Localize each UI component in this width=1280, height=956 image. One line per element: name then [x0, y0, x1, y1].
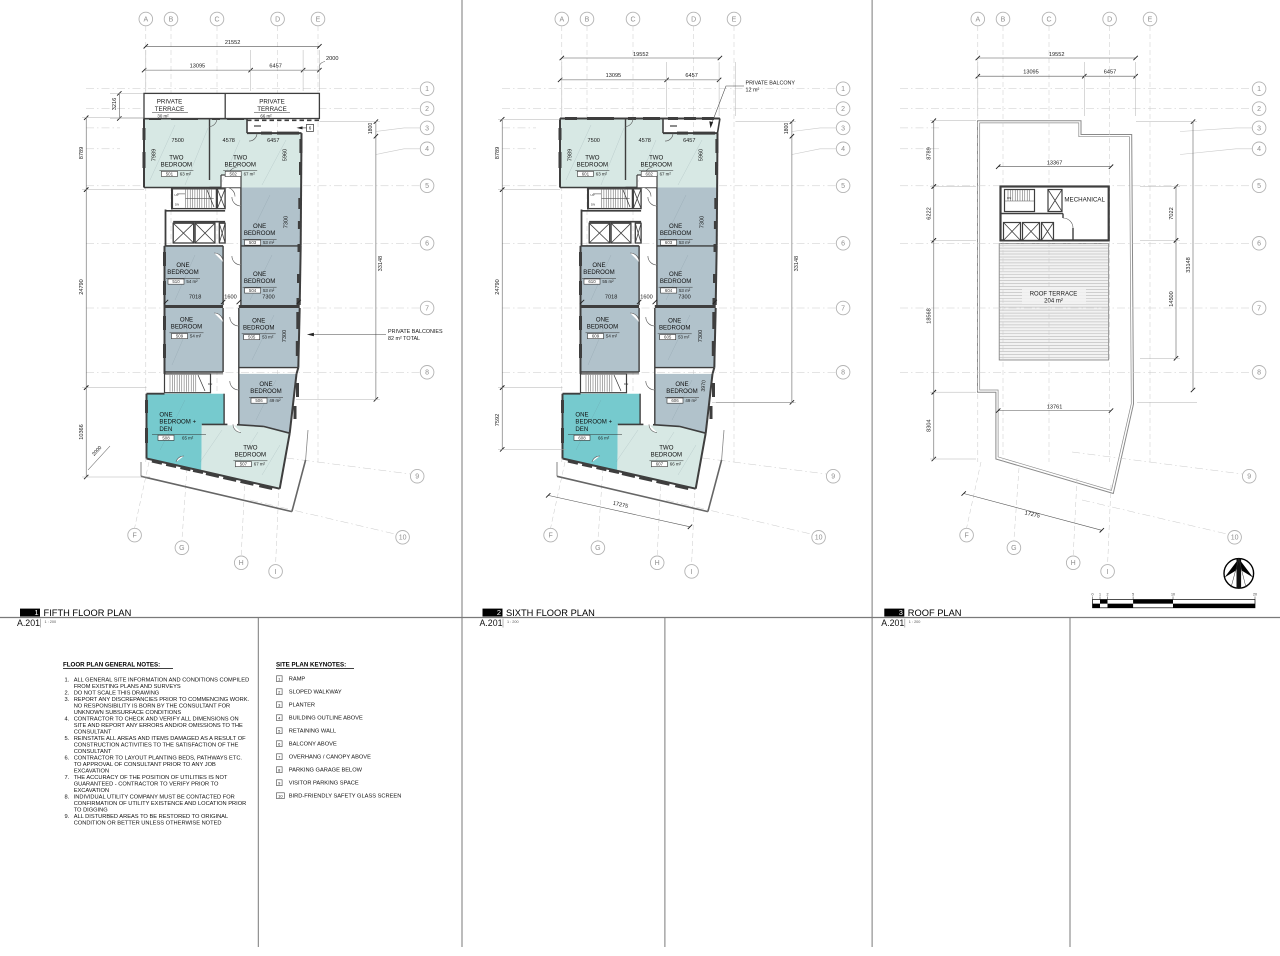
- svg-text:7300: 7300: [698, 330, 704, 342]
- svg-text:PRIVATE BALCONIES: PRIVATE BALCONIES: [388, 329, 443, 335]
- svg-text:33148: 33148: [1186, 257, 1192, 273]
- svg-text:ONE: ONE: [253, 223, 266, 230]
- svg-text:A: A: [559, 16, 564, 23]
- svg-text:5960: 5960: [699, 149, 705, 161]
- svg-text:ONE: ONE: [675, 381, 688, 388]
- svg-text:13761: 13761: [1047, 404, 1063, 410]
- svg-text:607: 607: [656, 462, 664, 467]
- svg-text:1600: 1600: [224, 295, 236, 301]
- svg-text:GUARANTEED - CONTRACTOR TO VER: GUARANTEED - CONTRACTOR TO VERIFY PRIOR …: [74, 782, 219, 788]
- svg-text:BEDROOM: BEDROOM: [651, 452, 683, 459]
- svg-text:E: E: [732, 16, 737, 23]
- svg-text:6.: 6.: [65, 756, 70, 762]
- svg-text:NO RESPONSIBILITY IS BORN BY T: NO RESPONSIBILITY IS BORN BY THE CONSULT…: [74, 704, 230, 710]
- svg-text:1 : 200: 1 : 200: [909, 620, 921, 624]
- svg-text:BALCONY ABOVE: BALCONY ABOVE: [289, 742, 337, 748]
- svg-text:508: 508: [162, 435, 170, 440]
- svg-text:7300: 7300: [282, 330, 288, 342]
- svg-text:VISITOR PARKING SPACE: VISITOR PARKING SPACE: [289, 781, 359, 787]
- svg-text:REINSTATE ALL AREAS AND ITEMS: REINSTATE ALL AREAS AND ITEMS DAMAGED AS…: [74, 736, 246, 742]
- svg-text:601: 601: [582, 172, 590, 177]
- svg-text:2: 2: [425, 106, 429, 113]
- svg-text:A: A: [143, 16, 148, 23]
- svg-text:DEN: DEN: [575, 426, 588, 433]
- svg-text:DN: DN: [175, 203, 179, 207]
- svg-text:ROOF PLAN: ROOF PLAN: [908, 608, 962, 618]
- svg-text:TWO: TWO: [585, 154, 599, 161]
- svg-text:5: 5: [1132, 593, 1134, 597]
- svg-text:608: 608: [578, 435, 586, 440]
- svg-text:7500: 7500: [171, 138, 183, 144]
- svg-text:4: 4: [425, 146, 429, 153]
- svg-text:B: B: [1001, 16, 1006, 23]
- svg-text:6457: 6457: [267, 138, 279, 144]
- svg-text:3970: 3970: [701, 380, 708, 392]
- svg-text:TO DIGGING: TO DIGGING: [74, 808, 108, 814]
- svg-text:7: 7: [425, 305, 429, 312]
- svg-text:1800: 1800: [368, 123, 374, 135]
- svg-text:ONE: ONE: [596, 317, 609, 324]
- svg-text:CONDITION OR BETTER UNLESS OTH: CONDITION OR BETTER UNLESS OTHERWISE NOT…: [74, 821, 222, 827]
- svg-text:F: F: [964, 533, 968, 540]
- svg-text:CONSULTANT: CONSULTANT: [74, 730, 112, 736]
- svg-text:CONSULTANT: CONSULTANT: [74, 749, 112, 755]
- svg-text:6: 6: [841, 241, 845, 248]
- svg-text:604: 604: [665, 288, 673, 293]
- svg-text:67 m²: 67 m²: [244, 172, 256, 177]
- svg-text:A.201: A.201: [881, 618, 904, 628]
- svg-text:BEDROOM +: BEDROOM +: [575, 419, 612, 426]
- svg-text:1600: 1600: [640, 295, 652, 301]
- svg-text:18568: 18568: [927, 308, 933, 324]
- svg-text:PRIVATE: PRIVATE: [259, 99, 285, 106]
- svg-text:602: 602: [646, 172, 654, 177]
- svg-text:67 m²: 67 m²: [254, 462, 266, 467]
- svg-text:UP: UP: [174, 193, 178, 197]
- svg-text:66 m²: 66 m²: [598, 435, 610, 440]
- svg-text:3: 3: [1257, 125, 1261, 132]
- svg-text:24790: 24790: [495, 279, 501, 295]
- svg-text:504: 504: [249, 288, 257, 293]
- svg-text:13095: 13095: [606, 73, 622, 79]
- svg-text:H: H: [239, 560, 244, 567]
- svg-text:TWO: TWO: [659, 445, 673, 452]
- svg-text:10: 10: [815, 535, 823, 542]
- svg-text:6: 6: [1257, 241, 1261, 248]
- svg-text:G: G: [1011, 545, 1016, 552]
- svg-text:1: 1: [1099, 593, 1101, 597]
- svg-text:BEDROOM: BEDROOM: [587, 324, 619, 331]
- svg-text:7500: 7500: [587, 138, 599, 144]
- svg-text:OVERHANG / CANOPY ABOVE: OVERHANG / CANOPY ABOVE: [289, 755, 371, 761]
- svg-text:10366: 10366: [79, 424, 85, 440]
- svg-text:7022: 7022: [1169, 207, 1175, 219]
- svg-text:7300: 7300: [284, 216, 290, 228]
- svg-text:3: 3: [425, 125, 429, 132]
- svg-text:3.: 3.: [65, 697, 70, 703]
- svg-text:TWO: TWO: [649, 154, 663, 161]
- svg-text:TERRACE: TERRACE: [155, 106, 185, 113]
- svg-text:PRIVATE BALCONY: PRIVATE BALCONY: [746, 81, 796, 87]
- svg-text:TWO: TWO: [169, 154, 183, 161]
- svg-text:19552: 19552: [633, 52, 649, 58]
- svg-text:5960: 5960: [283, 149, 289, 161]
- svg-text:FIFTH FLOOR PLAN: FIFTH FLOOR PLAN: [44, 608, 132, 618]
- svg-text:E: E: [316, 16, 321, 23]
- svg-text:BUILDING OUTLINE ABOVE: BUILDING OUTLINE ABOVE: [289, 716, 363, 722]
- svg-text:A: A: [975, 16, 980, 23]
- svg-text:BIRD-FRIENDLY SAFETY GLASS SCR: BIRD-FRIENDLY SAFETY GLASS SCREEN: [289, 794, 402, 800]
- svg-text:BEDROOM: BEDROOM: [244, 230, 276, 237]
- svg-text:ONE: ONE: [253, 271, 266, 278]
- svg-text:1 : 200: 1 : 200: [507, 620, 519, 624]
- svg-text:FROM EXISTING PLANS AND SURVEY: FROM EXISTING PLANS AND SURVEYS: [74, 684, 181, 690]
- svg-text:4578: 4578: [222, 138, 234, 144]
- svg-text:53 m²: 53 m²: [679, 288, 691, 293]
- svg-text:5: 5: [1257, 183, 1261, 190]
- svg-text:BEDROOM: BEDROOM: [660, 230, 692, 237]
- svg-text:INDIVIDUAL UTILITY COMPANY MUS: INDIVIDUAL UTILITY COMPANY MUST BE CONTA…: [74, 795, 235, 801]
- svg-text:6457: 6457: [685, 73, 697, 79]
- svg-text:503: 503: [249, 240, 257, 245]
- svg-text:9.: 9.: [65, 814, 70, 820]
- svg-text:BEDROOM: BEDROOM: [244, 278, 276, 285]
- svg-text:3: 3: [841, 125, 845, 132]
- svg-text:603: 603: [665, 240, 673, 245]
- svg-text:82 m² TOTAL: 82 m² TOTAL: [388, 336, 420, 342]
- svg-text:55 m²: 55 m²: [602, 279, 614, 284]
- svg-text:5: 5: [425, 183, 429, 190]
- svg-text:5.: 5.: [65, 736, 70, 742]
- svg-text:19552: 19552: [1049, 52, 1065, 58]
- svg-text:D: D: [275, 16, 280, 23]
- svg-text:TO APPROVAL OF CONSULTANT PRIO: TO APPROVAL OF CONSULTANT PRIOR TO ANY J…: [74, 762, 216, 768]
- svg-text:I: I: [1107, 569, 1109, 576]
- svg-text:4: 4: [1257, 146, 1261, 153]
- svg-text:49 m²: 49 m²: [685, 398, 697, 403]
- svg-text:ONE: ONE: [669, 223, 682, 230]
- svg-text:6457: 6457: [1104, 69, 1116, 75]
- svg-text:610: 610: [588, 279, 596, 284]
- svg-text:8789: 8789: [495, 147, 501, 159]
- svg-text:53 m²: 53 m²: [263, 240, 275, 245]
- svg-text:4578: 4578: [638, 138, 650, 144]
- svg-text:6: 6: [425, 241, 429, 248]
- svg-text:7300: 7300: [262, 295, 274, 301]
- svg-text:7989: 7989: [152, 149, 158, 161]
- svg-text:PRIVATE: PRIVATE: [157, 99, 183, 106]
- svg-text:BEDROOM: BEDROOM: [250, 388, 282, 395]
- svg-text:I: I: [691, 569, 693, 576]
- svg-text:SITE PLAN KEYNOTES:: SITE PLAN KEYNOTES:: [276, 662, 346, 669]
- svg-text:6222: 6222: [927, 207, 933, 219]
- svg-text:54 m²: 54 m²: [186, 279, 198, 284]
- svg-text:ONE: ONE: [259, 381, 272, 388]
- svg-text:53 m²: 53 m²: [262, 335, 274, 340]
- svg-text:1: 1: [425, 86, 429, 93]
- svg-text:9: 9: [831, 474, 835, 481]
- svg-text:509: 509: [176, 334, 184, 339]
- svg-text:CONSTRUCTION ACTIVITIES TO THE: CONSTRUCTION ACTIVITIES TO THE SATISFACT…: [74, 743, 239, 749]
- svg-text:PLANTER: PLANTER: [289, 703, 315, 709]
- svg-text:53 m²: 53 m²: [679, 240, 691, 245]
- svg-text:H: H: [1071, 560, 1076, 567]
- svg-text:66 m²: 66 m²: [670, 462, 682, 467]
- svg-text:8: 8: [841, 370, 845, 377]
- svg-text:6457: 6457: [269, 63, 281, 69]
- svg-text:ONE: ONE: [592, 262, 605, 269]
- svg-text:UP: UP: [590, 193, 594, 197]
- svg-text:A.201: A.201: [480, 618, 503, 628]
- svg-text:C: C: [1046, 16, 1051, 23]
- svg-text:TWO: TWO: [243, 445, 257, 452]
- svg-text:REPORT ANY DISCREPANCIES PRIOR: REPORT ANY DISCREPANCIES PRIOR TO COMMEN…: [74, 697, 250, 703]
- svg-text:BEDROOM: BEDROOM: [235, 452, 267, 459]
- svg-text:ALL GENERAL SITE INFORMATION A: ALL GENERAL SITE INFORMATION AND CONDITI…: [74, 678, 250, 684]
- svg-text:ROOF TERRACE: ROOF TERRACE: [1030, 292, 1078, 298]
- svg-text:5: 5: [841, 183, 845, 190]
- svg-text:CONTRACTOR TO LAYOUT PLANTING: CONTRACTOR TO LAYOUT PLANTING BEDS, PATH…: [74, 756, 243, 762]
- svg-text:502: 502: [230, 172, 238, 177]
- svg-text:BEDROOM: BEDROOM: [577, 162, 609, 169]
- svg-text:MECHANICAL: MECHANICAL: [1064, 197, 1105, 204]
- svg-text:D: D: [691, 16, 696, 23]
- svg-text:7592: 7592: [495, 414, 501, 426]
- svg-text:CONTRACTOR TO CHECK AND VERIFY: CONTRACTOR TO CHECK AND VERIFY ALL DIMEN…: [74, 717, 239, 723]
- svg-text:RETAINING WALL: RETAINING WALL: [289, 729, 336, 735]
- svg-text:DO NOT SCALE THIS DRAWING: DO NOT SCALE THIS DRAWING: [74, 691, 160, 697]
- svg-text:14500: 14500: [1169, 291, 1175, 307]
- svg-text:ONE: ONE: [669, 271, 682, 278]
- svg-text:BEDROOM: BEDROOM: [640, 162, 672, 169]
- svg-text:B: B: [585, 16, 590, 23]
- svg-text:7300: 7300: [678, 295, 690, 301]
- svg-text:E: E: [1148, 16, 1153, 23]
- svg-text:BEDROOM +: BEDROOM +: [159, 419, 196, 426]
- svg-text:1 : 200: 1 : 200: [45, 620, 57, 624]
- svg-text:13095: 13095: [1023, 69, 1039, 75]
- svg-text:510: 510: [172, 279, 180, 284]
- svg-text:ONE: ONE: [252, 318, 265, 325]
- svg-text:204 m²: 204 m²: [1044, 299, 1063, 305]
- svg-text:8.: 8.: [65, 795, 70, 801]
- svg-text:C: C: [214, 16, 219, 23]
- svg-text:D: D: [1107, 16, 1112, 23]
- svg-text:33148: 33148: [794, 256, 800, 272]
- svg-text:2: 2: [1257, 106, 1261, 113]
- svg-text:8304: 8304: [927, 419, 933, 431]
- svg-text:SLOPED WALKWAY: SLOPED WALKWAY: [289, 690, 342, 696]
- svg-text:2: 2: [1107, 593, 1109, 597]
- svg-text:13095: 13095: [190, 63, 206, 69]
- svg-text:3: 3: [899, 608, 903, 617]
- svg-text:7: 7: [841, 305, 845, 312]
- svg-text:C: C: [630, 16, 635, 23]
- svg-text:2: 2: [497, 608, 501, 617]
- svg-text:6457: 6457: [683, 138, 695, 144]
- svg-text:7989: 7989: [568, 149, 574, 161]
- svg-text:7.: 7.: [65, 775, 70, 781]
- svg-text:605: 605: [664, 335, 672, 340]
- svg-text:BEDROOM: BEDROOM: [161, 162, 193, 169]
- svg-text:12 m²: 12 m²: [746, 88, 760, 94]
- svg-text:DN: DN: [591, 203, 595, 207]
- svg-text:F: F: [132, 533, 136, 540]
- svg-text:1.: 1.: [65, 678, 70, 684]
- svg-text:DN: DN: [624, 382, 628, 386]
- svg-text:10: 10: [278, 793, 283, 798]
- svg-text:505: 505: [248, 335, 256, 340]
- svg-text:21552: 21552: [225, 40, 241, 46]
- svg-text:BEDROOM: BEDROOM: [583, 269, 615, 276]
- svg-text:SIXTH FLOOR PLAN: SIXTH FLOOR PLAN: [506, 608, 595, 618]
- svg-text:66 m²: 66 m²: [260, 113, 272, 118]
- svg-text:A.201: A.201: [17, 618, 40, 628]
- svg-text:ONE: ONE: [575, 412, 588, 419]
- svg-text:ONE: ONE: [180, 317, 193, 324]
- svg-text:10: 10: [1171, 593, 1175, 597]
- svg-text:2: 2: [841, 106, 845, 113]
- svg-text:0: 0: [1092, 593, 1094, 597]
- svg-text:30 m²: 30 m²: [157, 113, 169, 118]
- svg-text:BEDROOM: BEDROOM: [243, 325, 275, 332]
- svg-text:53 m²: 53 m²: [263, 288, 275, 293]
- svg-text:DN: DN: [208, 382, 212, 386]
- svg-text:ONE: ONE: [668, 318, 681, 325]
- svg-text:UNKNOWN SUBSURFACE CONDITIONS: UNKNOWN SUBSURFACE CONDITIONS: [74, 710, 182, 716]
- svg-text:53 m²: 53 m²: [678, 335, 690, 340]
- svg-text:10: 10: [1231, 535, 1239, 542]
- svg-text:G: G: [179, 545, 184, 552]
- svg-text:1: 1: [841, 86, 845, 93]
- svg-text:65 m²: 65 m²: [182, 435, 194, 440]
- svg-text:BEDROOM: BEDROOM: [167, 269, 199, 276]
- svg-text:7018: 7018: [605, 295, 617, 301]
- svg-text:G: G: [595, 545, 600, 552]
- svg-text:SITE AND REPORT ANY ERRORS AND: SITE AND REPORT ANY ERRORS AND/OR OMISSI…: [74, 723, 243, 729]
- svg-text:54 m²: 54 m²: [190, 334, 202, 339]
- svg-text:10: 10: [399, 535, 407, 542]
- svg-text:I: I: [275, 569, 277, 576]
- svg-text:B: B: [169, 16, 174, 23]
- svg-text:7: 7: [1257, 305, 1261, 312]
- svg-text:TERRACE: TERRACE: [257, 106, 287, 113]
- svg-text:FLOOR PLAN GENERAL NOTES:: FLOOR PLAN GENERAL NOTES:: [63, 662, 160, 669]
- svg-text:BEDROOM: BEDROOM: [171, 324, 203, 331]
- svg-text:CONFIRMATION OF UTILITY EXISTE: CONFIRMATION OF UTILITY EXISTENCE AND LO…: [74, 801, 247, 807]
- svg-text:24790: 24790: [79, 279, 85, 295]
- svg-text:TWO: TWO: [233, 154, 247, 161]
- svg-text:BEDROOM: BEDROOM: [659, 325, 691, 332]
- svg-text:63 m²: 63 m²: [596, 172, 608, 177]
- svg-text:H: H: [655, 560, 660, 567]
- svg-text:8789: 8789: [927, 147, 933, 159]
- svg-text:ALL DISTURBED AREAS TO BE REST: ALL DISTURBED AREAS TO BE RESTORED TO OR…: [74, 814, 228, 820]
- svg-text:9: 9: [415, 474, 419, 481]
- svg-text:1: 1: [1257, 86, 1261, 93]
- svg-text:EXCAVATION: EXCAVATION: [74, 788, 109, 794]
- svg-text:RAMP: RAMP: [289, 677, 306, 683]
- svg-text:4: 4: [841, 146, 845, 153]
- svg-text:BEDROOM: BEDROOM: [666, 388, 698, 395]
- svg-text:2.: 2.: [65, 691, 70, 697]
- svg-text:606: 606: [671, 398, 679, 403]
- svg-text:1: 1: [34, 608, 38, 617]
- svg-text:506: 506: [255, 398, 263, 403]
- svg-text:501: 501: [166, 172, 174, 177]
- svg-text:8: 8: [1257, 370, 1261, 377]
- svg-text:7300: 7300: [700, 216, 706, 228]
- svg-text:EXCAVATION: EXCAVATION: [74, 769, 109, 775]
- svg-text:3216: 3216: [112, 98, 118, 110]
- svg-text:507: 507: [240, 462, 248, 467]
- svg-text:4.: 4.: [65, 717, 70, 723]
- svg-text:F: F: [548, 533, 552, 540]
- svg-text:ONE: ONE: [176, 262, 189, 269]
- svg-text:9: 9: [1247, 474, 1251, 481]
- svg-text:8: 8: [425, 370, 429, 377]
- svg-text:13367: 13367: [1047, 161, 1063, 167]
- svg-text:7018: 7018: [189, 295, 201, 301]
- svg-text:1800: 1800: [784, 123, 790, 135]
- svg-text:20: 20: [1253, 593, 1257, 597]
- svg-text:2000: 2000: [326, 56, 338, 62]
- svg-text:54 m²: 54 m²: [606, 334, 618, 339]
- svg-text:BEDROOM: BEDROOM: [660, 278, 692, 285]
- svg-text:33148: 33148: [378, 256, 384, 272]
- svg-text:8789: 8789: [79, 147, 85, 159]
- svg-text:609: 609: [592, 334, 600, 339]
- svg-text:PARKING GARAGE BELOW: PARKING GARAGE BELOW: [289, 768, 363, 774]
- svg-text:ONE: ONE: [159, 412, 172, 419]
- svg-text:6: 6: [309, 126, 312, 131]
- svg-text:THE ACCURACY OF THE POSITION O: THE ACCURACY OF THE POSITION OF UTILITIE…: [74, 775, 228, 781]
- svg-text:BEDROOM: BEDROOM: [224, 162, 256, 169]
- svg-text:63 m²: 63 m²: [180, 172, 192, 177]
- svg-text:67 m²: 67 m²: [660, 172, 672, 177]
- svg-text:49 m²: 49 m²: [269, 398, 281, 403]
- svg-text:DEN: DEN: [159, 426, 172, 433]
- svg-text:DN: DN: [1007, 196, 1011, 200]
